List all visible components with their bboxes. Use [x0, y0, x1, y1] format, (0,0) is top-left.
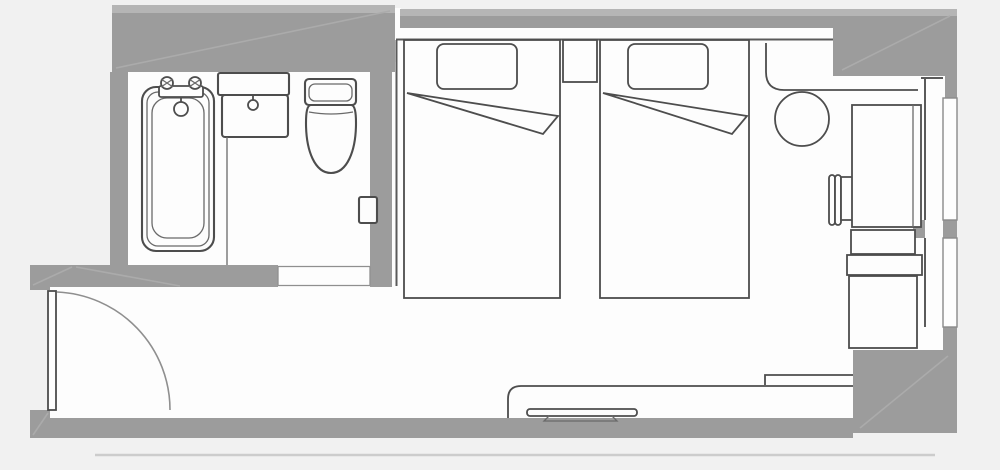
tv-screen [527, 409, 637, 416]
floor-plan [0, 0, 1000, 470]
window-1 [943, 98, 957, 220]
wall-bottom-band [30, 418, 853, 438]
wall-top-left-block-edge [112, 5, 395, 13]
wall-bathroom-right [370, 72, 392, 287]
wall-top-band-edge [400, 9, 833, 16]
window-2 [943, 238, 957, 327]
vanity-sink [218, 73, 289, 137]
round-table [775, 92, 829, 146]
wall-top-left-block [112, 5, 395, 72]
wall-pier-top [945, 76, 957, 98]
wall-corridor [30, 265, 278, 287]
nightstand [563, 40, 597, 82]
desk [852, 105, 921, 227]
sink-faucet [248, 100, 258, 110]
shelf-band [847, 255, 922, 275]
faucet-spout [174, 102, 188, 116]
cabinet [849, 276, 917, 348]
pillow-1 [437, 44, 517, 89]
wall-bathroom-left [110, 72, 128, 265]
wall-switch-panel [359, 197, 377, 223]
vanity-counter [218, 73, 289, 95]
bathroom-door-opening [278, 264, 370, 288]
door-leaf [48, 291, 56, 410]
pillow-2 [628, 44, 708, 89]
shelf-unit [851, 230, 915, 254]
toilet [305, 79, 356, 173]
wall-top-right-block-edge [833, 9, 957, 16]
wall-pier-mid [943, 220, 957, 238]
